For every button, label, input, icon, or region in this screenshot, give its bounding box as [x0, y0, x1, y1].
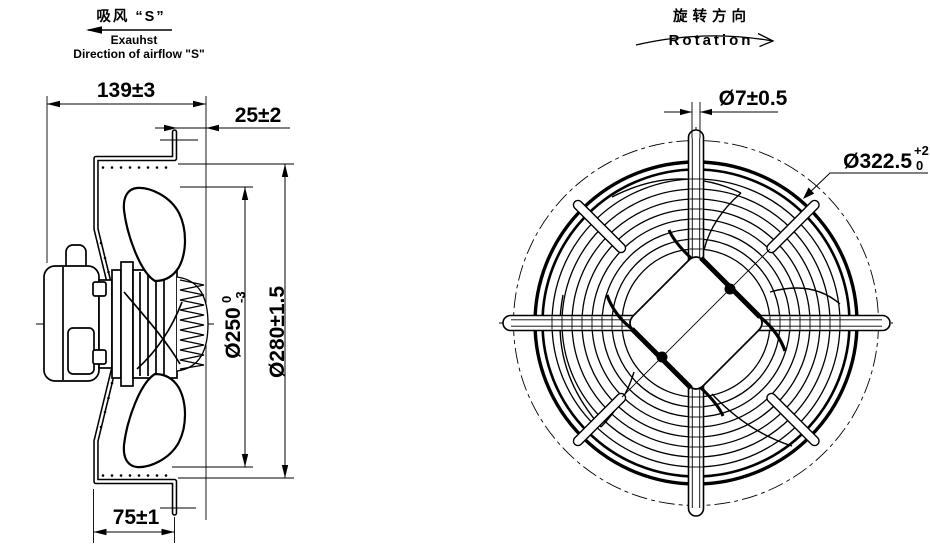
dim-guard-base: Ø322.5: [843, 150, 912, 173]
dim-guard-tol-lower: 0: [916, 158, 923, 173]
rotation-label-en: Rotation: [669, 32, 754, 49]
dim-depth-label: 139±3: [97, 79, 155, 102]
dim-plate-width-label: 75±1: [113, 506, 160, 529]
fan-dimensional-drawing: 吸风 “S” Exauhst Direction of airflow "S" …: [0, 0, 930, 545]
dim-opening-label: Ø280±1.5: [266, 286, 289, 378]
airflow-note: 吸风 “S” Exauhst Direction of airflow "S": [73, 8, 204, 61]
motor-assembly: [44, 245, 208, 386]
arrowhead: [47, 101, 60, 107]
front-view: Ø7±0.5 Ø322.5 +2 0: [499, 87, 929, 519]
motor-bolt-top: [93, 282, 106, 296]
arrowhead: [242, 187, 248, 200]
airflow-arrow-icon: [86, 26, 102, 34]
airflow-label-en1: Exauhst: [111, 33, 158, 47]
blade-bottom: [124, 374, 185, 467]
dim-impeller-tol-lower: -3: [233, 291, 248, 303]
dim-wire-label: Ø7±0.5: [719, 87, 788, 110]
dim-wire-7: Ø7±0.5: [664, 87, 788, 138]
airflow-label-en2: Direction of airflow "S": [73, 47, 204, 61]
rotation-label-zh: 旋转方向: [672, 7, 751, 25]
arrowhead: [206, 125, 219, 131]
mount-screw-bottom: [657, 352, 668, 363]
arrowhead: [680, 109, 692, 115]
dim-plate-width-75: 75±1: [94, 489, 175, 543]
dim-guard-gap-25: 25±2: [155, 104, 290, 131]
rotor-fins: [177, 277, 208, 371]
arrowhead: [282, 465, 288, 478]
arrowhead: [193, 101, 206, 107]
arrowhead: [700, 109, 712, 115]
terminal-box-window: [68, 328, 94, 374]
dim-impeller-base: Ø250: [222, 307, 245, 358]
dim-guard-gap-label: 25±2: [235, 104, 282, 127]
arrowhead: [282, 164, 288, 177]
flange-plate-2: [121, 262, 133, 386]
airflow-label-zh: 吸风 “S”: [96, 8, 165, 25]
technical-drawing-svg: 吸风 “S” Exauhst Direction of airflow "S" …: [0, 0, 930, 545]
motor-bolt-bottom: [93, 350, 106, 364]
arrowhead: [162, 529, 175, 535]
mount-screw-top: [725, 284, 736, 295]
dim-guard-322: Ø322.5 +2 0: [803, 143, 929, 199]
dim-guard-tol-upper: +2: [914, 143, 929, 158]
flange-plate-1: [112, 270, 121, 378]
side-view: 139±3 25±2 75±1 Ø250 0 -3: [36, 79, 294, 543]
rotation-note: 旋转方向 Rotation: [636, 7, 773, 49]
dim-impeller-tol-upper: 0: [219, 296, 234, 303]
arrowhead: [242, 454, 248, 467]
arrowhead: [94, 529, 107, 535]
